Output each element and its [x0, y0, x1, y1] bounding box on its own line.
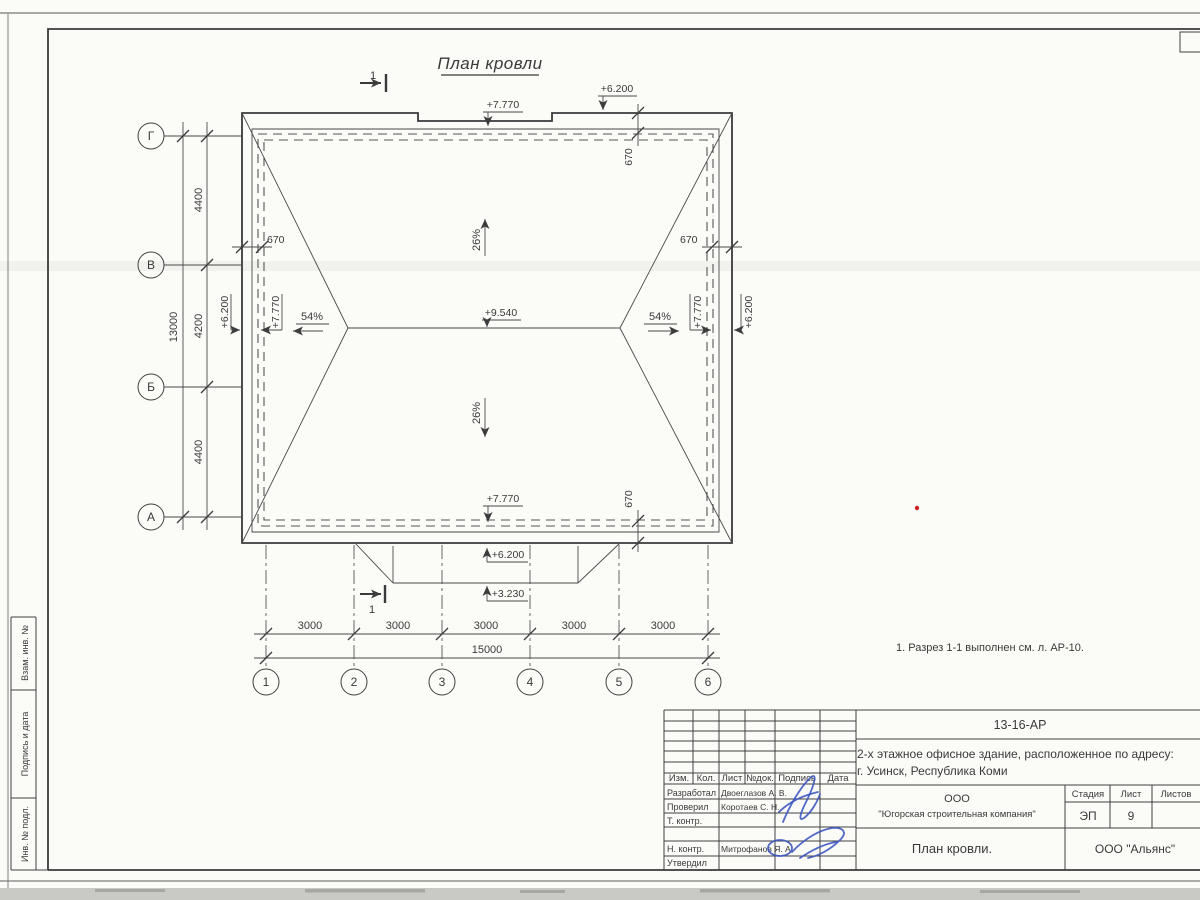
- corner-stamp-box: [1180, 32, 1200, 52]
- tb-drawing-title: План кровли.: [912, 841, 992, 856]
- dim-bottom-segment: 3000: [562, 620, 586, 632]
- dim-eave-offset: 670: [267, 234, 285, 246]
- tb-name: Двоеглазов А. В.: [721, 788, 787, 798]
- side-box-label: Инв. № подл.: [20, 806, 30, 862]
- red-speck: [915, 506, 919, 510]
- elevation-label: +6.200: [492, 549, 525, 561]
- axis-bubble-label: 3: [439, 675, 446, 689]
- tb-stage-label: Стадия: [1072, 789, 1104, 800]
- side-box-label: Подпись и дата: [20, 712, 30, 777]
- slope-label: 54%: [649, 311, 671, 323]
- left-dimensions: 4400 4200 4400 13000: [168, 122, 213, 530]
- tb-contractor: ООО "Альянс": [1095, 842, 1175, 856]
- bottom-dimensions: 3000 3000 3000 3000 3000 15000: [254, 620, 720, 664]
- elevation-label: +6.200: [601, 83, 634, 95]
- tb-name: Митрофанов Я. А.: [721, 844, 793, 854]
- tb-object-line2: г. Усинск, Республика Коми: [857, 764, 1008, 778]
- side-box-label: Взам. инв. №: [20, 625, 30, 681]
- elevation-marks: +7.770 +6.200 +9.540 +7.770 +6.200 +3.23…: [219, 83, 755, 601]
- axis-bubble-label: 1: [263, 675, 270, 689]
- tb-col-header: Кол.: [697, 773, 716, 784]
- dim-left-segment: 4400: [193, 440, 205, 464]
- dim-bottom-segment: 3000: [298, 620, 322, 632]
- axis-bubbles: Г В Б А 1 2 3 4 5 6: [138, 123, 721, 695]
- section-mark-label: 1: [369, 604, 375, 616]
- tb-role: Утвердил: [667, 858, 707, 868]
- tb-role: Разработал: [667, 788, 716, 798]
- tb-stage-value: ЭП: [1079, 809, 1096, 823]
- tb-object-line1: 2-х этажное офисное здание, расположенно…: [857, 747, 1174, 761]
- elevation-label: +7.770: [270, 296, 282, 329]
- elevation-label: +7.770: [692, 296, 704, 329]
- axis-bubble-label: В: [147, 258, 155, 272]
- tb-role: Н. контр.: [667, 844, 704, 854]
- scan-artifacts: [0, 13, 1200, 900]
- elevation-label: +7.770: [487, 99, 520, 111]
- dim-bottom-segment: 3000: [474, 620, 498, 632]
- axis-bubble-label: Г: [148, 129, 155, 143]
- section-marks: 1 1: [360, 70, 386, 616]
- tb-doc-number: 13-16-АР: [994, 718, 1047, 732]
- tb-company-line2: "Югорская строительная компания": [878, 809, 1036, 820]
- dim-left-segment: 4200: [193, 314, 205, 338]
- elevation-label: +6.200: [743, 296, 755, 329]
- drawing-note: 1. Разрез 1-1 выполнен см. л. АР-10.: [896, 642, 1084, 654]
- dim-bottom-segment: 3000: [651, 620, 675, 632]
- slope-label: 26%: [471, 402, 483, 424]
- dim-left-segment: 4400: [193, 188, 205, 212]
- dim-left-total: 13000: [168, 312, 180, 343]
- tb-sheet-label: Лист: [1121, 789, 1142, 800]
- entrance-canopy: [355, 543, 620, 583]
- dim-bottom-segment: 3000: [386, 620, 410, 632]
- page-title: План кровли: [437, 54, 542, 73]
- tb-col-header: №док.: [746, 773, 774, 784]
- roof-outline: [242, 113, 732, 543]
- tb-col-header: Лист: [722, 773, 743, 784]
- elevation-label: +3.230: [492, 588, 525, 600]
- section-mark-label: 1: [370, 70, 376, 82]
- axis-bubble-label: А: [147, 510, 155, 524]
- tb-sheet-number: 9: [1128, 809, 1135, 823]
- tb-name: Коротаев С. Н.: [721, 802, 779, 812]
- elevation-label: +7.770: [487, 493, 520, 505]
- dim-eave-offset: 670: [623, 490, 635, 508]
- side-stamp-column: Взам. инв. № Подпись и дата Инв. № подл.: [11, 617, 48, 870]
- drawing-title: План кровли: [437, 54, 542, 75]
- dim-eave-offset: 670: [623, 148, 635, 166]
- axis-bubble-label: 5: [616, 675, 623, 689]
- axis-bubble-label: 2: [351, 675, 358, 689]
- dim-bottom-total: 15000: [472, 644, 503, 656]
- tb-role: Проверил: [667, 802, 708, 812]
- roof-plan-drawing: Взам. инв. № Подпись и дата Инв. № подл.…: [0, 0, 1200, 900]
- slope-label: 26%: [471, 229, 483, 251]
- axis-bubble-label: Б: [147, 380, 155, 394]
- axis-bubble-label: 4: [527, 675, 534, 689]
- slope-label: 54%: [301, 311, 323, 323]
- tb-company-line1: ООО: [944, 793, 970, 805]
- elevation-label: +9.540: [485, 307, 518, 319]
- tb-role: Т. контр.: [667, 816, 702, 826]
- scanned-drawing-sheet: Взам. инв. № Подпись и дата Инв. № подл.…: [0, 0, 1200, 900]
- elevation-label: +6.200: [219, 296, 231, 329]
- tb-col-header: Дата: [827, 773, 849, 784]
- title-block: Изм. Кол. Лист №док. Подпись Дата Разраб…: [664, 710, 1200, 870]
- tb-sheets-label: Листов: [1161, 789, 1192, 800]
- tb-col-header: Изм.: [669, 773, 689, 784]
- dim-eave-offset: 670: [680, 234, 698, 246]
- axis-bubble-label: 6: [705, 675, 712, 689]
